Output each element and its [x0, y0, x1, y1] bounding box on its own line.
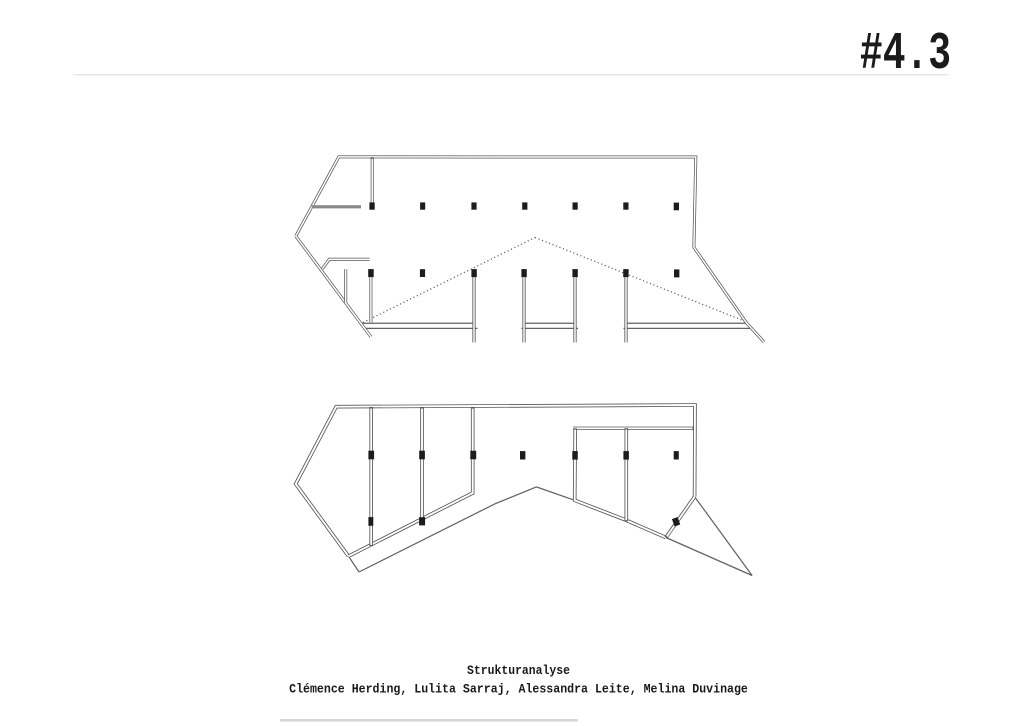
svg-text:Clémence Herding, Lulita Sarra: Clémence Herding, Lulita Sarraj, Alessan…: [289, 682, 748, 697]
svg-text:#4.3: #4.3: [860, 24, 951, 84]
svg-text:Strukturanalyse: Strukturanalyse: [467, 663, 570, 678]
